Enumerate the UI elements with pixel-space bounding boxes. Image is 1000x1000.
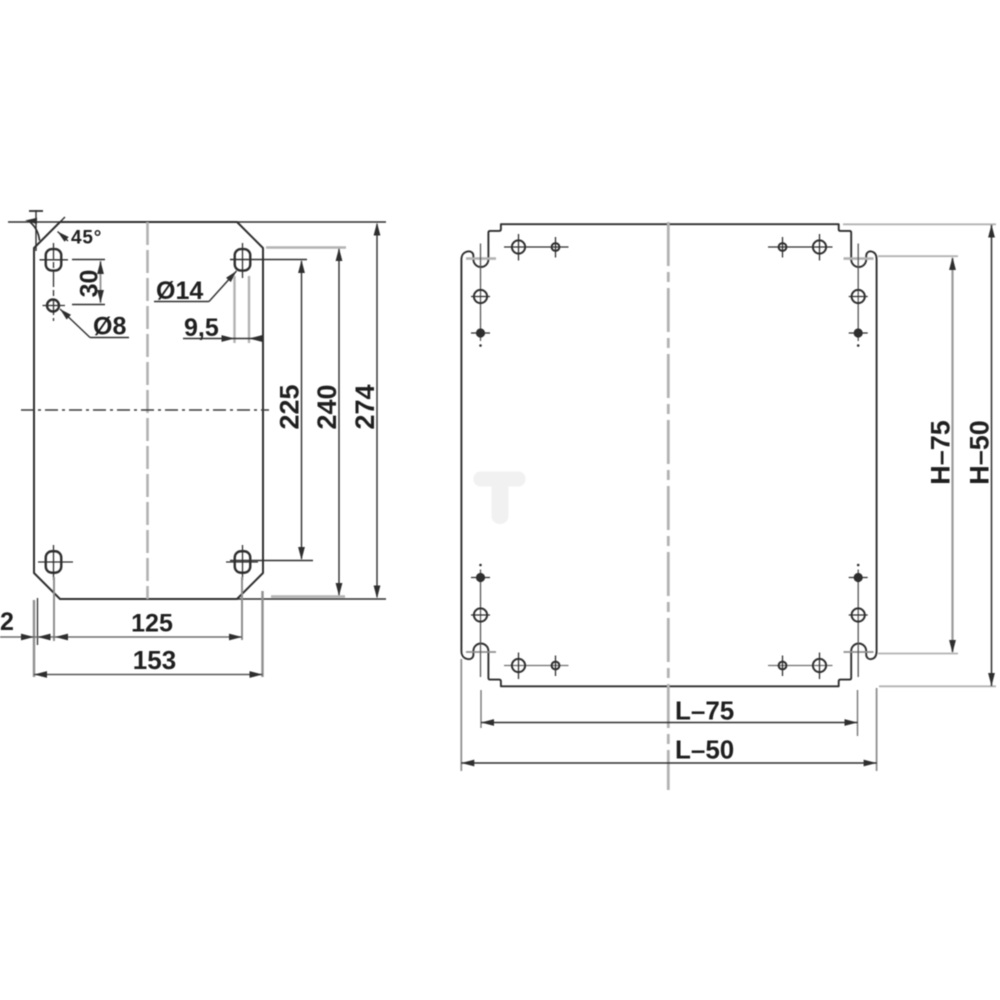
svg-text:H–50: H–50: [965, 420, 995, 485]
svg-text:274: 274: [350, 384, 380, 429]
svg-text:H–75: H–75: [926, 420, 956, 485]
svg-text:153: 153: [133, 645, 176, 675]
svg-text:30: 30: [76, 270, 104, 298]
svg-text:L–75: L–75: [675, 696, 734, 726]
svg-text:2: 2: [0, 608, 14, 636]
svg-text:225: 225: [275, 384, 305, 429]
svg-text:125: 125: [131, 610, 173, 638]
svg-text:Ø8: Ø8: [93, 313, 126, 341]
svg-text:L–50: L–50: [675, 735, 734, 765]
svg-text:240: 240: [312, 384, 342, 429]
svg-text:45°: 45°: [71, 228, 102, 249]
